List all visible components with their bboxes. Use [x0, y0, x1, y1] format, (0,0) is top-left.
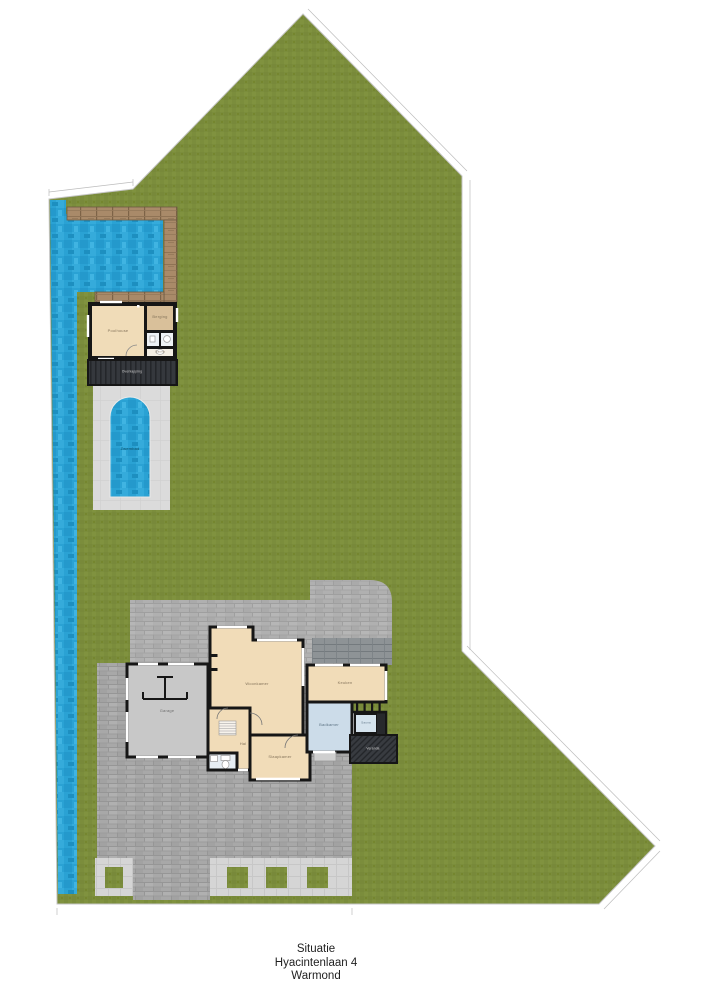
- toilet-icon: [150, 336, 155, 342]
- washbasin-icon: [211, 756, 218, 762]
- room-label-veranda: Veranda: [366, 747, 379, 750]
- room-label-canopy: Overkapping: [122, 370, 142, 373]
- caption: Situatie Hyacintenlaan 4 Warmond: [275, 943, 357, 984]
- room-label-sauna-house: Sauna: [361, 722, 371, 725]
- shrub: [227, 867, 248, 888]
- caption-address: Hyacintenlaan 4: [275, 957, 357, 971]
- cistern-icon: [221, 756, 230, 761]
- roof-slate-strip: [312, 638, 392, 665]
- site-plan-drawing: [0, 0, 707, 1000]
- caption-city: Warmond: [275, 970, 357, 984]
- room-label-poolhouse: Poolhouse: [108, 329, 129, 333]
- room-label-pool: Zwembad: [121, 447, 140, 451]
- room-label-garage: Garage: [160, 709, 175, 713]
- shower-block: [377, 713, 386, 735]
- room-label-hall: Hal: [240, 742, 247, 746]
- situation-plan: Zwembad Poolhouse Berging Sauna Overkapp…: [0, 0, 707, 1000]
- toilet-bowl-icon: [222, 761, 229, 769]
- driveway-entrance: [133, 858, 210, 900]
- room-label-storage: Berging: [152, 315, 167, 319]
- room-label-kitchen: Keuken: [338, 681, 353, 685]
- room-label-bedroom: Slaapkamer: [268, 755, 291, 759]
- back-step: [314, 752, 336, 761]
- caption-title: Situatie: [275, 943, 357, 957]
- shower-icon: [164, 336, 171, 343]
- room-label-sauna-small: Sauna: [155, 351, 165, 354]
- shrub: [307, 867, 328, 888]
- shrub: [266, 867, 287, 888]
- shrub: [105, 867, 123, 888]
- room-label-living: Woonkamer: [245, 682, 268, 686]
- staircase: [219, 721, 236, 735]
- bathroom-room: [307, 702, 352, 752]
- chimney-block: [137, 305, 140, 308]
- room-label-bathroom: Badkamer: [319, 723, 339, 727]
